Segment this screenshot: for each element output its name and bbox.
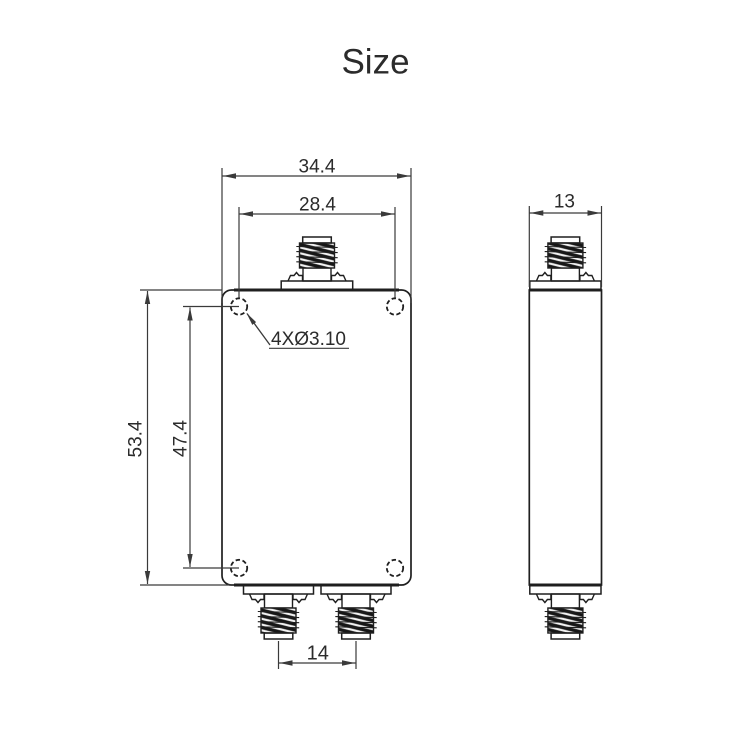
svg-text:4XØ3.10: 4XØ3.10 (271, 329, 346, 350)
svg-text:47.4: 47.4 (171, 420, 192, 457)
svg-text:53.4: 53.4 (126, 420, 147, 457)
svg-text:14: 14 (307, 643, 329, 665)
svg-text:13: 13 (554, 192, 575, 213)
svg-text:28.4: 28.4 (299, 195, 336, 216)
svg-text:34.4: 34.4 (299, 157, 336, 178)
svg-text:Size: Size (341, 43, 409, 82)
